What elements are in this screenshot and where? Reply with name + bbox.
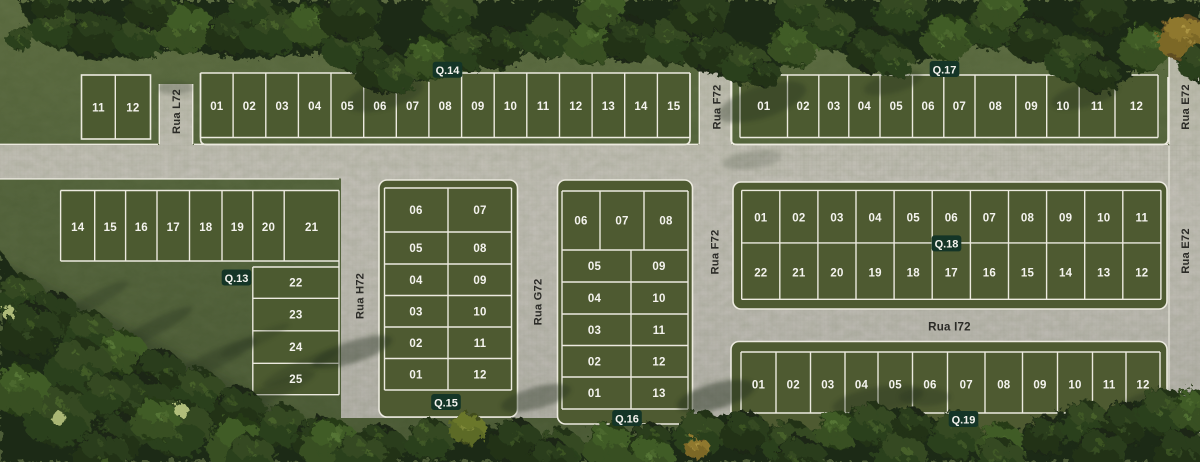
svg-text:02: 02 <box>409 338 422 350</box>
svg-text:04: 04 <box>409 275 423 287</box>
svg-text:07: 07 <box>960 380 973 392</box>
svg-text:16: 16 <box>135 222 148 234</box>
svg-text:19: 19 <box>868 268 881 280</box>
svg-text:04: 04 <box>855 380 869 392</box>
svg-text:18: 18 <box>907 268 921 280</box>
svg-text:06: 06 <box>409 205 422 217</box>
svg-text:01: 01 <box>409 369 423 381</box>
svg-text:03: 03 <box>275 101 288 113</box>
svg-text:06: 06 <box>574 216 587 228</box>
svg-text:17: 17 <box>167 222 180 234</box>
svg-text:11: 11 <box>92 103 105 115</box>
svg-text:02: 02 <box>796 101 809 113</box>
svg-text:08: 08 <box>997 380 1011 392</box>
svg-text:Q.17: Q.17 <box>933 64 957 76</box>
svg-text:10: 10 <box>652 293 665 305</box>
svg-text:16: 16 <box>983 268 996 280</box>
svg-text:09: 09 <box>652 261 665 273</box>
svg-text:14: 14 <box>634 101 648 113</box>
svg-text:02: 02 <box>243 101 256 113</box>
svg-text:05: 05 <box>890 101 904 113</box>
svg-text:08: 08 <box>1021 212 1035 224</box>
svg-text:11: 11 <box>1091 101 1104 113</box>
svg-text:Rua E72: Rua E72 <box>1180 228 1192 274</box>
svg-text:11: 11 <box>1103 380 1116 392</box>
svg-text:03: 03 <box>409 306 422 318</box>
svg-text:12: 12 <box>652 356 665 368</box>
svg-text:03: 03 <box>821 380 834 392</box>
svg-text:08: 08 <box>439 101 453 113</box>
svg-text:24: 24 <box>289 342 303 354</box>
svg-text:05: 05 <box>889 380 903 392</box>
svg-text:13: 13 <box>602 101 615 113</box>
svg-text:05: 05 <box>409 243 423 255</box>
svg-text:04: 04 <box>868 212 882 224</box>
svg-text:Q.13: Q.13 <box>225 273 249 285</box>
svg-text:12: 12 <box>1136 380 1149 392</box>
svg-text:12: 12 <box>569 101 582 113</box>
svg-text:01: 01 <box>757 101 771 113</box>
svg-text:04: 04 <box>858 101 872 113</box>
svg-text:13: 13 <box>652 388 665 400</box>
svg-text:07: 07 <box>473 205 486 217</box>
svg-text:Q.18: Q.18 <box>935 239 959 251</box>
svg-text:03: 03 <box>830 212 843 224</box>
svg-text:08: 08 <box>473 243 487 255</box>
svg-text:07: 07 <box>953 101 966 113</box>
svg-text:08: 08 <box>989 101 1003 113</box>
svg-text:12: 12 <box>1130 101 1143 113</box>
svg-text:21: 21 <box>305 222 319 234</box>
svg-text:08: 08 <box>659 216 673 228</box>
svg-text:12: 12 <box>126 103 139 115</box>
svg-text:17: 17 <box>945 268 958 280</box>
svg-text:18: 18 <box>199 222 213 234</box>
svg-text:22: 22 <box>754 268 767 280</box>
svg-text:10: 10 <box>1068 380 1081 392</box>
svg-text:12: 12 <box>1135 268 1148 280</box>
svg-text:05: 05 <box>907 212 921 224</box>
svg-text:Rua I72: Rua I72 <box>928 321 971 334</box>
svg-text:06: 06 <box>373 101 386 113</box>
svg-text:Rua F72: Rua F72 <box>712 85 724 130</box>
svg-text:Rua L72: Rua L72 <box>171 89 183 134</box>
svg-text:Rua F72: Rua F72 <box>710 230 722 275</box>
svg-text:11: 11 <box>653 325 666 337</box>
svg-text:10: 10 <box>1097 212 1110 224</box>
svg-text:09: 09 <box>473 275 486 287</box>
svg-text:15: 15 <box>104 222 118 234</box>
svg-text:03: 03 <box>588 325 601 337</box>
svg-text:02: 02 <box>787 380 800 392</box>
svg-text:14: 14 <box>71 222 85 234</box>
svg-text:25: 25 <box>289 374 303 386</box>
svg-text:20: 20 <box>830 268 843 280</box>
svg-text:22: 22 <box>289 278 302 290</box>
svg-text:15: 15 <box>1021 268 1035 280</box>
svg-text:15: 15 <box>667 101 681 113</box>
svg-text:21: 21 <box>792 268 806 280</box>
svg-text:12: 12 <box>473 369 486 381</box>
svg-text:06: 06 <box>923 380 936 392</box>
svg-text:01: 01 <box>588 388 602 400</box>
svg-text:Rua E72: Rua E72 <box>1180 84 1192 130</box>
svg-text:03: 03 <box>827 101 840 113</box>
svg-text:05: 05 <box>588 261 602 273</box>
svg-text:11: 11 <box>1136 212 1149 224</box>
svg-text:14: 14 <box>1059 268 1073 280</box>
svg-text:19: 19 <box>231 222 244 234</box>
svg-text:13: 13 <box>1097 268 1110 280</box>
svg-text:11: 11 <box>474 338 487 350</box>
svg-text:Q.16: Q.16 <box>615 413 639 425</box>
svg-text:01: 01 <box>210 101 224 113</box>
svg-text:Q.15: Q.15 <box>434 397 458 409</box>
svg-text:10: 10 <box>473 306 486 318</box>
svg-text:Rua G72: Rua G72 <box>533 279 545 326</box>
svg-text:20: 20 <box>262 222 275 234</box>
svg-text:04: 04 <box>588 293 602 305</box>
svg-text:07: 07 <box>406 101 419 113</box>
svg-text:09: 09 <box>1025 101 1038 113</box>
svg-text:10: 10 <box>1056 101 1069 113</box>
svg-text:01: 01 <box>752 380 766 392</box>
svg-text:05: 05 <box>341 101 355 113</box>
svg-text:07: 07 <box>615 216 628 228</box>
svg-text:07: 07 <box>983 212 996 224</box>
svg-text:06: 06 <box>945 212 958 224</box>
svg-text:Q.14: Q.14 <box>436 65 461 77</box>
svg-text:09: 09 <box>471 101 484 113</box>
svg-text:09: 09 <box>1059 212 1072 224</box>
svg-text:01: 01 <box>754 212 768 224</box>
svg-text:09: 09 <box>1033 380 1046 392</box>
svg-text:06: 06 <box>921 101 934 113</box>
svg-text:02: 02 <box>792 212 805 224</box>
svg-text:02: 02 <box>588 356 601 368</box>
svg-text:23: 23 <box>289 310 302 322</box>
svg-text:Q.19: Q.19 <box>952 414 976 426</box>
svg-text:11: 11 <box>537 101 550 113</box>
svg-text:04: 04 <box>308 101 322 113</box>
svg-text:10: 10 <box>504 101 517 113</box>
svg-text:Rua H72: Rua H72 <box>355 273 367 319</box>
